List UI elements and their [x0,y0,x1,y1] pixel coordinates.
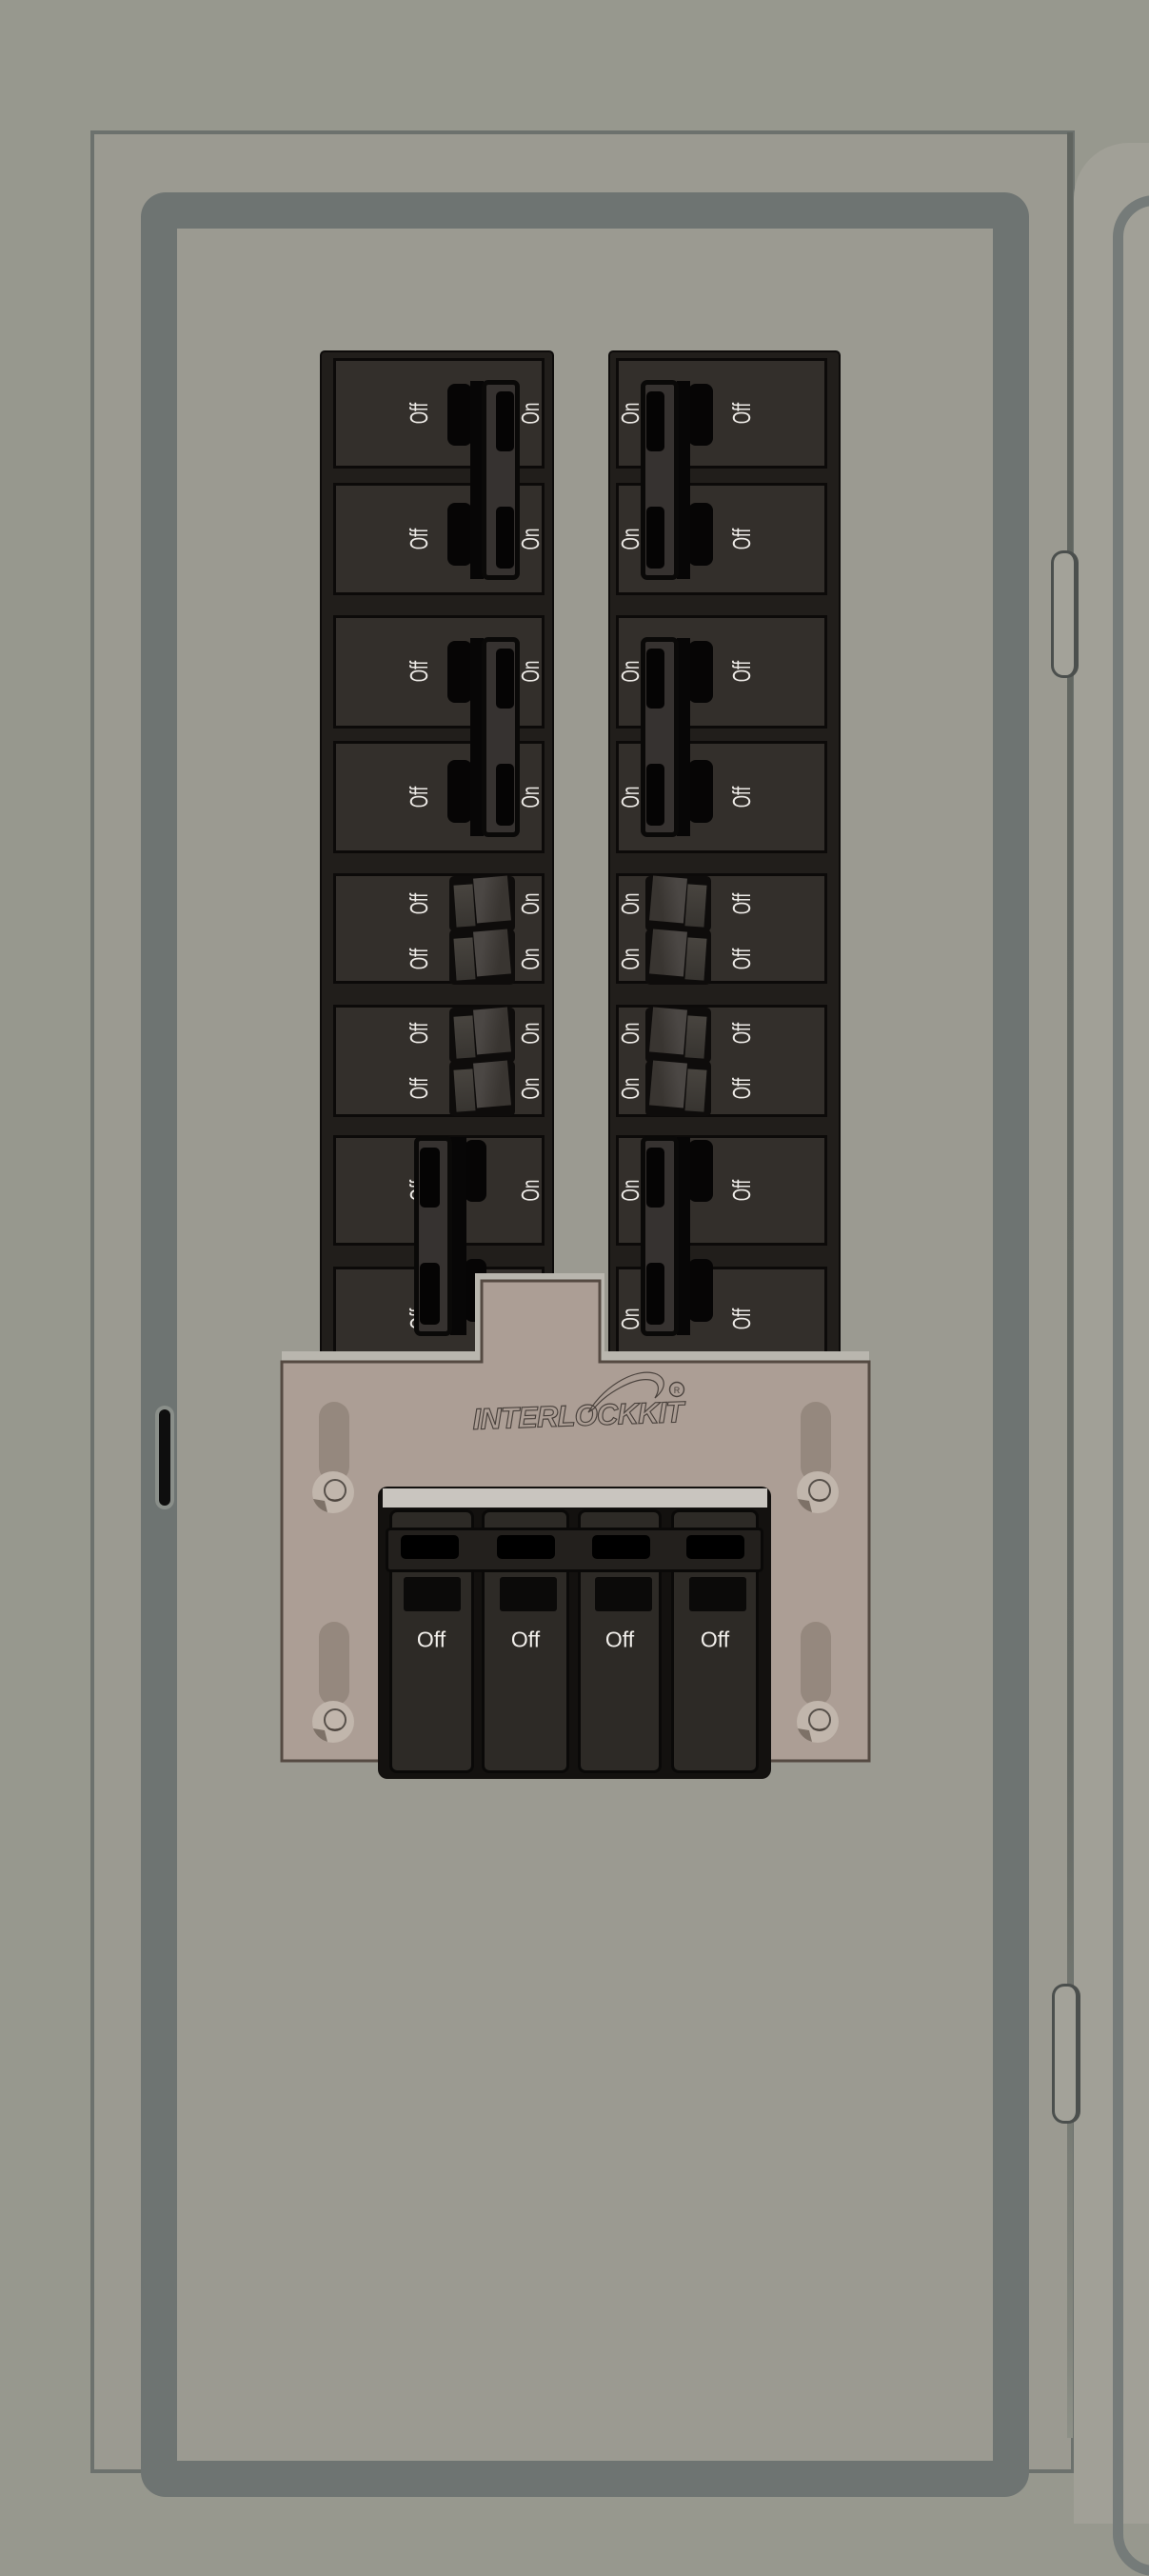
svg-text:R: R [674,1386,681,1395]
